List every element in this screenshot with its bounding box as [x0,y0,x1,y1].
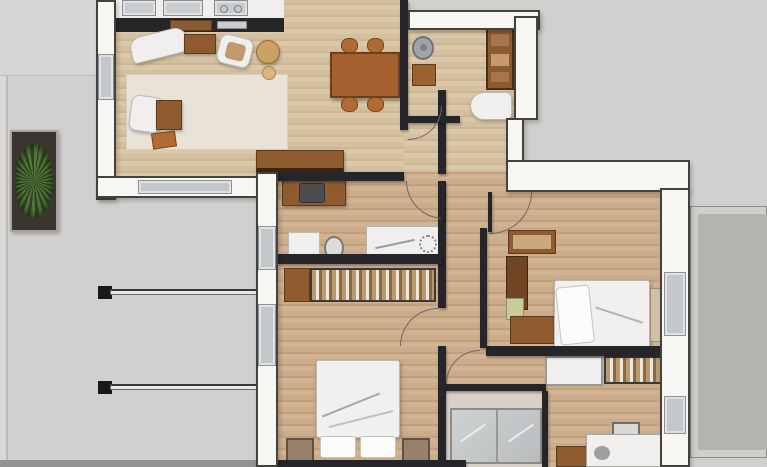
armchair-cushion [224,41,247,62]
wardrobe-open-clothes-2 [604,356,662,384]
wall-office-top [262,172,404,181]
double-bed [314,358,402,464]
storage-box [556,446,588,467]
wall-shower-top [444,384,546,391]
side-table [156,100,182,130]
kitchen-counter [114,0,284,18]
dining-table [330,52,400,98]
balcony-railing-upper [98,286,266,300]
bed-pillow [320,436,356,458]
dining-chair [367,97,384,112]
burner-icon [234,5,242,13]
window-wing-left-upper [258,226,276,270]
wall-entry-right [514,16,538,120]
wardrobe-interior [513,235,551,249]
burner-icon [220,5,228,13]
desk-stool [594,446,610,460]
wall-bottom-edge [256,460,466,467]
shower-enclosure [450,408,542,464]
window-living-bottom [138,180,232,194]
kitchen-prep-tile [163,0,203,16]
window-wing-left-lower [258,304,276,366]
dining-chair [341,38,358,53]
wall-master-bottom [486,346,670,356]
shelf-item [491,54,509,66]
bathroom-sink-round [412,36,434,60]
window-right-upper [664,272,686,336]
shelf-item [491,34,509,46]
wall-wing-vertical-lower [438,346,446,467]
wardrobe-master [508,230,556,254]
kitchen-island-dark [114,18,284,32]
faucet-icon [420,44,427,51]
door-leaf-master [488,192,492,232]
toilet [470,92,512,120]
coffee-table [184,34,216,54]
stool [151,130,177,149]
shelf-unit [545,356,603,386]
window-living-left [98,54,114,100]
bathroom-cabinet-small [412,64,436,86]
balcony-railing-lower [98,381,266,395]
wardrobe-open-clothes [310,268,436,302]
wall-living-left [96,0,116,200]
glass-streak [508,424,534,443]
printer [299,183,325,203]
door-leaf-office [441,181,445,220]
nightstand [286,438,314,462]
bed-pillow [360,436,396,458]
shelf-item [491,72,509,82]
wardrobe-side-box [284,268,310,302]
sideboard [256,150,344,172]
glass-streak [460,424,486,443]
shower-glass-divider [496,410,498,462]
terrace-slab-top-left [0,0,106,76]
pouf-small [262,66,276,80]
ground-bottom-shadow [0,460,290,467]
wall-bathroom-left [400,0,408,130]
wall-entry-jog [506,118,524,166]
kitchen-sink-tile [122,0,156,16]
railing-bar [110,289,266,295]
terrace-right-slab [698,214,767,450]
shelf-cabinet [486,26,514,90]
plant-icon [15,144,53,218]
sketch-scribble [419,235,437,253]
kitchen-stove-tile [214,0,248,16]
wall-dining-corridor [438,90,446,174]
bed-pillow [555,284,595,345]
wall-shower-right [542,391,548,467]
window-right-lower [664,396,686,434]
wall-office-bedroom [262,254,442,264]
floor-plan-scene [0,0,767,467]
nightstand [402,438,430,462]
serving-tray [217,21,247,29]
planter [10,130,58,232]
railing-bar [110,384,266,390]
pouf [256,40,280,64]
printer-cabinet [282,180,346,206]
vanity-desk [510,316,558,344]
sketch-line [375,239,415,249]
master-bed [554,278,664,352]
wall-hall-master [480,228,487,348]
dining-chair [367,38,384,53]
dining-chair [341,97,358,112]
